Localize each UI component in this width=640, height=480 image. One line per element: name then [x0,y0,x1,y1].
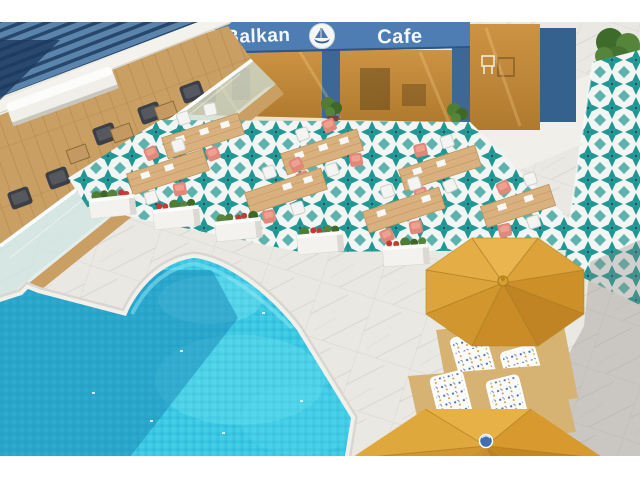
sign-text-cafe: Cafe [377,26,423,49]
ship-logo [310,24,335,49]
umbrella-large [426,238,584,346]
planter-box [296,224,344,255]
pool-terrace-scene: Balkan Cafe [0,0,640,480]
letterbox-bottom [0,456,640,480]
facade-panel [540,28,576,122]
render-canvas: Balkan Cafe [0,0,640,480]
letterbox-top [0,0,640,22]
planter-box [214,210,263,242]
